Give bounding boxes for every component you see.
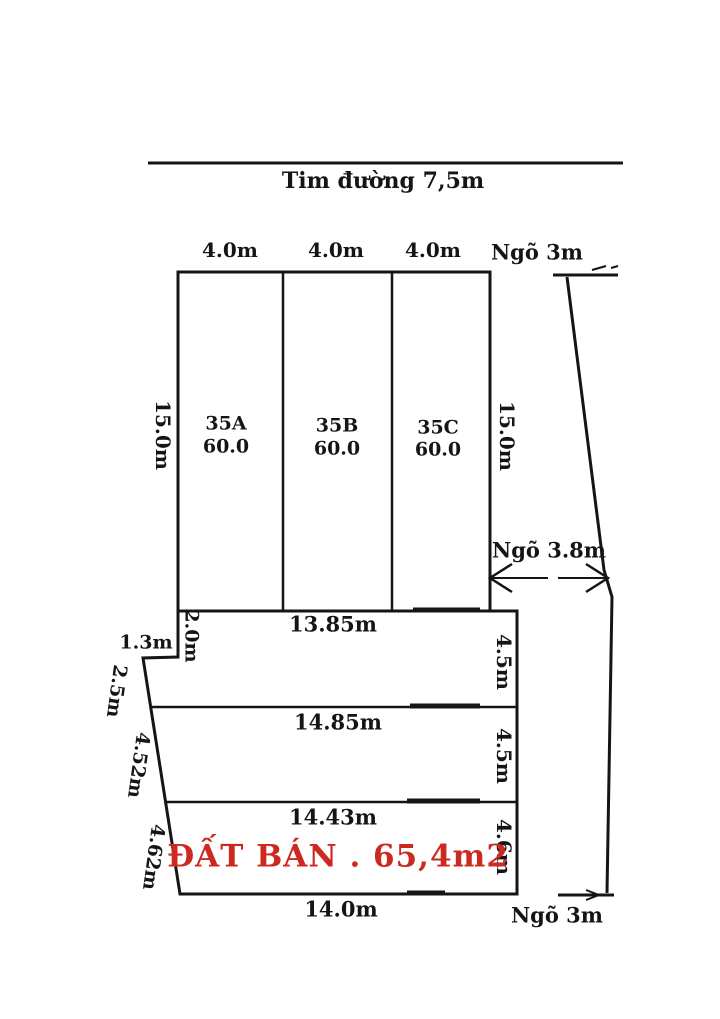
alley-boundary-line — [567, 277, 612, 893]
plot-id-35c: 35C — [417, 419, 459, 438]
lower-row-width-2: 14.85m — [294, 712, 382, 733]
plot-width-dim-2: 4.0m — [308, 240, 364, 260]
plot-height-dim-left: 15.0m — [153, 400, 173, 470]
alley-label-top: Ngõ 3m — [491, 242, 583, 263]
alley-label-mid: Ngõ 3.8m — [492, 540, 606, 561]
plot-area-35a: 60.0 — [203, 438, 249, 457]
plot-area-35c: 60.0 — [415, 441, 461, 460]
road-title: Tim đường 7,5m — [282, 170, 484, 192]
step-dim-vertical: 2.0m — [182, 609, 201, 662]
sale-text: ĐẤT BÁN . 65,4m2 — [167, 842, 509, 873]
land-plot-diagram: Tim đường 7,5m 4.0m 4.0m 4.0m Ngõ 3m 15.… — [0, 0, 720, 1019]
plot-height-dim-right: 15.0m — [497, 401, 517, 471]
plot-id-35a: 35A — [205, 415, 246, 434]
lower-row-height-2: 4.5m — [494, 728, 514, 784]
lower-row-width-1: 13.85m — [289, 614, 377, 635]
plot-area-35b: 60.0 — [314, 440, 360, 459]
step-dim-horizontal: 1.3m — [119, 634, 172, 653]
alley-top-tick-mark — [592, 266, 618, 270]
plot-width-dim-1: 4.0m — [202, 240, 258, 260]
alley-label-bottom: Ngõ 3m — [511, 905, 603, 926]
plot-id-35b: 35B — [316, 417, 359, 436]
lower-row-width-3: 14.43m — [289, 807, 377, 828]
lower-bottom-width: 14.0m — [304, 899, 377, 920]
plot-width-dim-3: 4.0m — [405, 240, 461, 260]
lower-row-height-1: 4.5m — [494, 634, 514, 690]
